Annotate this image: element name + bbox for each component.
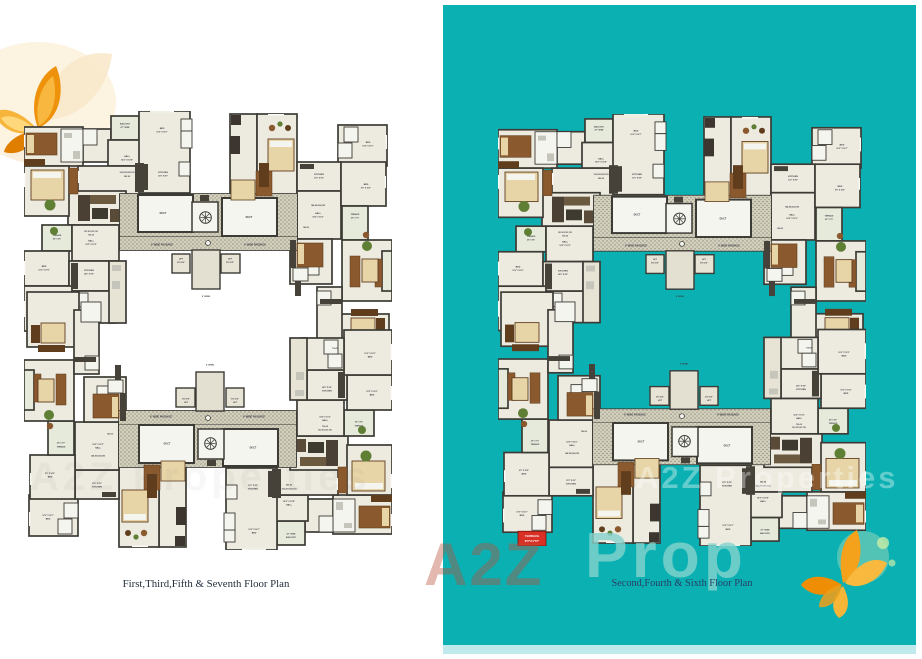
svg-text:BALCONY: BALCONY (286, 536, 297, 539)
svg-text:KITCHEN: KITCHEN (788, 176, 798, 178)
svg-text:14'5" X 15'8": 14'5" X 15'8" (757, 497, 769, 500)
svg-text:10'0" X 10'0": 10'0" X 10'0" (840, 389, 851, 391)
svg-text:9'0" X 10'0": 9'0" X 10'0" (361, 188, 371, 190)
svg-text:365.05: 365.05 (598, 178, 605, 180)
svg-text:DUCT: DUCT (638, 440, 645, 443)
svg-text:BED: BED (46, 519, 51, 521)
svg-text:DUCT: DUCT (250, 447, 257, 450)
svg-text:101,201,301,701: 101,201,301,701 (318, 429, 332, 431)
svg-text:10'0" X 14'7": 10'0" X 14'7" (630, 133, 641, 136)
svg-text:DUCT: DUCT (246, 216, 253, 219)
svg-text:8'6"x5'8": 8'6"x5'8" (705, 397, 713, 399)
svg-text:BED: BED (370, 395, 375, 397)
svg-text:HALL: HALL (315, 212, 321, 215)
svg-text:6' WIDE PASSAGE: 6' WIDE PASSAGE (150, 415, 172, 418)
svg-text:HALL: HALL (124, 155, 130, 158)
svg-text:BED: BED (42, 266, 47, 268)
svg-text:706.05: 706.05 (88, 235, 94, 237)
svg-text:BED: BED (844, 393, 849, 395)
svg-text:8'6"x5'8": 8'6"x5'8" (226, 262, 234, 264)
svg-text:8'6"x5'8": 8'6"x5'8" (182, 398, 190, 400)
svg-text:4'6" X 9'6": 4'6" X 9'6" (53, 238, 61, 241)
svg-text:4'7" WIDE: 4'7" WIDE (761, 529, 771, 532)
svg-text:148.00: 148.00 (777, 227, 783, 230)
svg-text:148,300,504,700: 148,300,504,700 (785, 206, 799, 209)
svg-text:4'6" X 9'6": 4'6" X 9'6" (355, 421, 363, 424)
svg-text:14'5" X 12'5": 14'5" X 12'5" (312, 216, 323, 219)
svg-text:12'0" X 14'7": 12'0" X 14'7" (516, 510, 527, 513)
svg-text:KITCHEN: KITCHEN (322, 391, 332, 393)
svg-text:BED: BED (366, 142, 371, 144)
svg-text:101,201,301,701: 101,201,301,701 (558, 232, 572, 234)
svg-text:DUCT: DUCT (634, 213, 641, 216)
svg-text:193,293,393,793: 193,293,393,793 (119, 172, 135, 174)
svg-text:4'6" X 7'0": 4'6" X 7'0" (531, 439, 539, 442)
svg-text:14'5" X 15'8": 14'5" X 15'8" (283, 500, 295, 503)
svg-text:KITCHEN: KITCHEN (566, 484, 576, 486)
svg-text:4'7" WIDE: 4'7" WIDE (287, 532, 297, 535)
svg-text:BED: BED (838, 186, 843, 188)
svg-text:BED: BED (160, 128, 165, 130)
svg-text:HALL: HALL (760, 500, 767, 503)
svg-text:TOILET: TOILET (332, 348, 338, 350)
svg-text:HALL: HALL (88, 240, 94, 243)
svg-text:10'0" X 10'0": 10'0" X 10'0" (366, 391, 377, 393)
svg-text:9'0" X 10'0": 9'0" X 10'0" (835, 189, 845, 191)
svg-text:706.05: 706.05 (322, 426, 328, 428)
svg-text:8'6"x5'8": 8'6"x5'8" (656, 397, 664, 399)
svg-text:DUCT: DUCT (720, 217, 727, 220)
svg-text:HALL: HALL (569, 444, 576, 447)
svg-text:14'0" X 8'9": 14'0" X 8'9" (84, 273, 94, 276)
svg-text:148.00: 148.00 (107, 432, 113, 435)
svg-text:14'0" X 8'9": 14'0" X 8'9" (558, 273, 568, 276)
svg-text:KITCHEN: KITCHEN (84, 270, 94, 272)
svg-text:6' WING: 6' WING (676, 296, 685, 298)
svg-text:6' WING: 6' WING (680, 363, 689, 365)
svg-text:10'0" X 14'7": 10'0" X 14'7" (156, 131, 167, 134)
svg-text:BED: BED (522, 474, 527, 476)
svg-text:TERRACE: TERRACE (531, 443, 540, 446)
svg-text:14'5" X 12'5": 14'5" X 12'5" (786, 217, 797, 220)
svg-text:HALL: HALL (95, 447, 101, 450)
svg-text:101,201,301,701: 101,201,301,701 (84, 231, 98, 233)
svg-text:6' WING: 6' WING (206, 365, 215, 367)
svg-text:TERRACE: TERRACE (351, 213, 360, 216)
svg-text:10'0" X 14'7": 10'0" X 14'7" (248, 528, 259, 531)
svg-text:HALL: HALL (322, 419, 328, 422)
svg-text:KITCHEN: KITCHEN (796, 389, 806, 391)
svg-text:8'6"x5'8": 8'6"x5'8" (700, 263, 708, 265)
svg-text:11'0" X 8'0": 11'0" X 8'0" (158, 176, 168, 178)
svg-text:4'7" WIDE: 4'7" WIDE (121, 126, 131, 129)
svg-text:6' WIDE PASSAGE: 6' WIDE PASSAGE (151, 244, 173, 247)
svg-text:12'0" X 14'7": 12'0" X 14'7" (42, 514, 53, 517)
svg-text:TERRACE: TERRACE (825, 214, 834, 217)
svg-text:4'6" X 9'6": 4'6" X 9'6" (829, 419, 837, 422)
svg-text:BED: BED (516, 267, 521, 269)
svg-text:4'6" X 7'0": 4'6" X 7'0" (351, 217, 359, 220)
svg-text:14'5" X 13'5": 14'5" X 13'5" (85, 243, 96, 246)
svg-text:14'5" X 15'8": 14'5" X 15'8" (121, 159, 133, 162)
svg-text:706.05: 706.05 (562, 236, 568, 238)
svg-text:14'5" X 13'5": 14'5" X 13'5" (793, 413, 804, 416)
svg-text:148,300,504,700: 148,300,504,700 (565, 452, 579, 455)
svg-text:148.00: 148.00 (303, 226, 309, 229)
svg-text:KITCHEN: KITCHEN (158, 172, 168, 174)
svg-text:HALL: HALL (286, 504, 292, 507)
svg-text:14'0" X 8'9": 14'0" X 8'9" (322, 386, 332, 389)
svg-text:14'5" X 12'5": 14'5" X 12'5" (92, 443, 103, 446)
svg-text:706.05: 706.05 (796, 424, 802, 426)
svg-text:148,300,504,700: 148,300,504,700 (311, 204, 325, 207)
svg-text:14'5" X 13'5": 14'5" X 13'5" (559, 244, 570, 247)
svg-text:8'6"x5'8": 8'6"x5'8" (231, 398, 239, 400)
svg-text:HALL: HALL (789, 213, 796, 216)
svg-text:BED: BED (840, 144, 845, 146)
svg-text:101,201,301,701: 101,201,301,701 (792, 427, 806, 429)
svg-text:BED: BED (364, 184, 369, 186)
svg-text:TERRACE: TERRACE (57, 445, 66, 448)
svg-text:6' WIDE PASSAGE: 6' WIDE PASSAGE (718, 244, 740, 247)
svg-text:11'0" X 8'0": 11'0" X 8'0" (314, 178, 324, 180)
svg-text:10'0" X 10'0": 10'0" X 10'0" (38, 270, 49, 272)
svg-text:6' WIDE PASSAGE: 6' WIDE PASSAGE (717, 413, 739, 416)
svg-text:14'5" X 15'8": 14'5" X 15'8" (595, 161, 607, 164)
svg-text:14'5" X 12'5": 14'5" X 12'5" (566, 441, 577, 444)
svg-text:TOILET: TOILET (806, 347, 812, 349)
svg-text:6' WIDE PASSAGE: 6' WIDE PASSAGE (244, 244, 266, 247)
svg-text:4'6" X 9'6": 4'6" X 9'6" (527, 238, 535, 241)
svg-text:BED: BED (252, 533, 257, 535)
svg-text:10'0" X 12'0": 10'0" X 12'0" (838, 352, 849, 354)
svg-text:DUCT: DUCT (724, 444, 731, 447)
svg-text:6' WIDE PASSAGE: 6' WIDE PASSAGE (624, 413, 646, 416)
svg-text:11'0" X 8'0": 11'0" X 8'0" (788, 179, 798, 181)
svg-text:HALL: HALL (562, 240, 569, 243)
svg-text:4'6" X 7'0": 4'6" X 7'0" (825, 218, 833, 221)
svg-text:KITCHEN: KITCHEN (558, 270, 568, 272)
svg-text:BED: BED (520, 515, 525, 517)
svg-text:BALCONY: BALCONY (760, 532, 771, 535)
svg-text:8'6"x5'8": 8'6"x5'8" (177, 262, 185, 264)
svg-text:12'0" X 14'7": 12'0" X 14'7" (836, 147, 847, 150)
svg-text:BALCONY: BALCONY (594, 125, 605, 128)
svg-text:148.00: 148.00 (581, 430, 587, 433)
svg-text:4'6" X 7'0": 4'6" X 7'0" (57, 442, 65, 445)
svg-text:365.05: 365.05 (124, 176, 131, 178)
svg-text:193,293,393,793: 193,293,393,793 (594, 174, 610, 176)
svg-text:10'0" X 12'0": 10'0" X 12'0" (364, 353, 375, 355)
svg-text:6' WIDE PASSAGE: 6' WIDE PASSAGE (243, 415, 265, 418)
svg-text:BALCONY: BALCONY (120, 123, 131, 126)
svg-text:6' WING: 6' WING (202, 296, 211, 298)
svg-text:HALL: HALL (796, 417, 803, 420)
svg-text:11'0" X 8'0": 11'0" X 8'0" (632, 177, 642, 179)
svg-text:12'0" X 14'7": 12'0" X 14'7" (362, 145, 373, 148)
svg-text:9'0" X 10'0": 9'0" X 10'0" (519, 470, 529, 472)
svg-text:14'5" X 13'5": 14'5" X 13'5" (319, 415, 330, 418)
svg-text:10'0" X 10'0": 10'0" X 10'0" (512, 270, 523, 272)
svg-text:BED: BED (634, 131, 639, 133)
svg-text:DUCT: DUCT (160, 212, 167, 215)
svg-text:6' WIDE PASSAGE: 6' WIDE PASSAGE (625, 244, 647, 247)
svg-text:BED: BED (842, 356, 847, 358)
svg-text:BED: BED (368, 357, 373, 359)
svg-text:14'0" X 8'9": 14'0" X 8'9" (796, 384, 806, 387)
svg-text:DUCT: DUCT (164, 443, 171, 446)
svg-text:KITCHEN: KITCHEN (314, 174, 324, 176)
svg-text:11'0" X 8'0": 11'0" X 8'0" (566, 480, 576, 482)
svg-text:HALL: HALL (598, 157, 605, 160)
svg-text:8'6"x5'8": 8'6"x5'8" (651, 263, 659, 265)
svg-text:KITCHEN: KITCHEN (632, 174, 642, 176)
svg-text:4'7" WIDE: 4'7" WIDE (595, 129, 605, 132)
